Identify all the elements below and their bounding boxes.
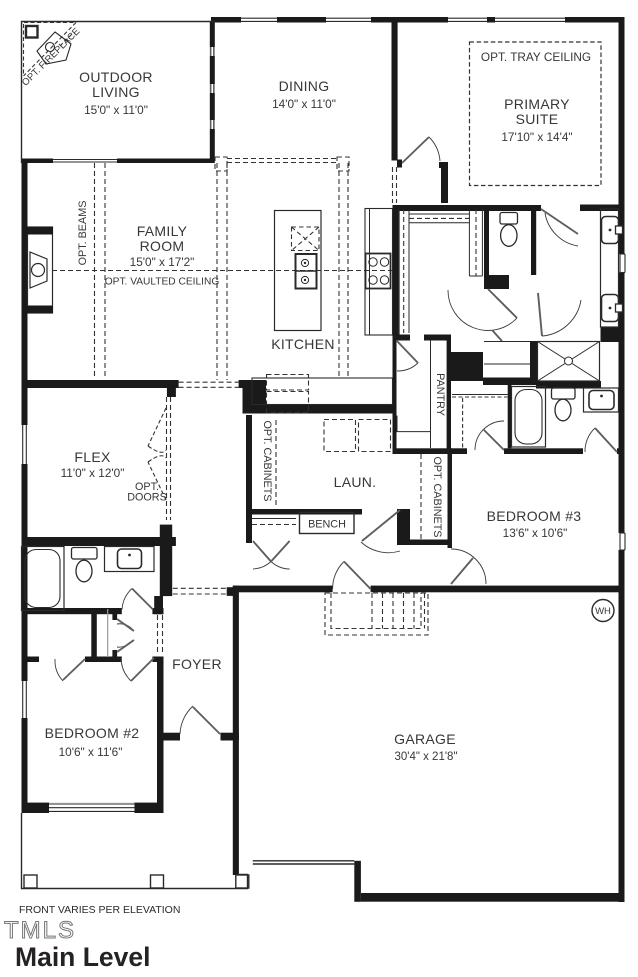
- svg-text:PRIMARY: PRIMARY: [504, 96, 570, 112]
- svg-text:SUITE: SUITE: [516, 111, 559, 127]
- svg-text:BEDROOM #3: BEDROOM #3: [487, 508, 582, 524]
- svg-text:LIVING: LIVING: [92, 84, 140, 100]
- svg-text:OUTDOOR: OUTDOOR: [79, 69, 153, 85]
- svg-text:ROOM: ROOM: [140, 238, 185, 254]
- svg-text:FLEX: FLEX: [74, 449, 111, 465]
- svg-text:15'0" x 17'2": 15'0" x 17'2": [130, 255, 195, 269]
- svg-text:15'0" x 11'0": 15'0" x 11'0": [84, 103, 148, 117]
- svg-text:FAMILY: FAMILY: [137, 223, 188, 239]
- svg-text:13'6" x 10'6": 13'6" x 10'6": [503, 526, 568, 540]
- svg-text:KITCHEN: KITCHEN: [271, 336, 335, 352]
- svg-text:OPT. TRAY CEILING: OPT. TRAY CEILING: [481, 50, 591, 64]
- svg-text:OPT. VAULTED CEILING: OPT. VAULTED CEILING: [105, 277, 220, 288]
- svg-text:BENCH: BENCH: [308, 519, 346, 531]
- svg-text:BEDROOM #2: BEDROOM #2: [45, 725, 140, 741]
- svg-text:OPT. BEAMS: OPT. BEAMS: [77, 201, 89, 266]
- svg-text:FRONT VARIES PER ELEVATION: FRONT VARIES PER ELEVATION: [19, 904, 180, 916]
- svg-text:30'4" x 21'8": 30'4" x 21'8": [394, 751, 457, 763]
- svg-text:DOORS: DOORS: [127, 492, 167, 504]
- svg-text:14'0" x 11'0": 14'0" x 11'0": [272, 97, 336, 111]
- svg-text:Main Level: Main Level: [15, 942, 151, 972]
- svg-text:LAUN.: LAUN.: [334, 474, 377, 490]
- svg-text:WH: WH: [595, 606, 611, 617]
- svg-text:11'0" x 12'0": 11'0" x 12'0": [61, 466, 125, 480]
- svg-text:FOYER: FOYER: [172, 656, 222, 672]
- svg-text:GARAGE: GARAGE: [394, 731, 456, 747]
- svg-text:DINING: DINING: [279, 78, 330, 94]
- svg-text:PANTRY: PANTRY: [434, 373, 446, 416]
- svg-text:17'10" x 14'4": 17'10" x 14'4": [501, 130, 572, 144]
- svg-text:OPT. CABINETS: OPT. CABINETS: [431, 457, 443, 538]
- svg-text:TMLS: TMLS: [4, 917, 76, 944]
- svg-text:OPT. CABINETS: OPT. CABINETS: [261, 421, 273, 502]
- svg-text:10'6" x 11'6": 10'6" x 11'6": [59, 745, 123, 759]
